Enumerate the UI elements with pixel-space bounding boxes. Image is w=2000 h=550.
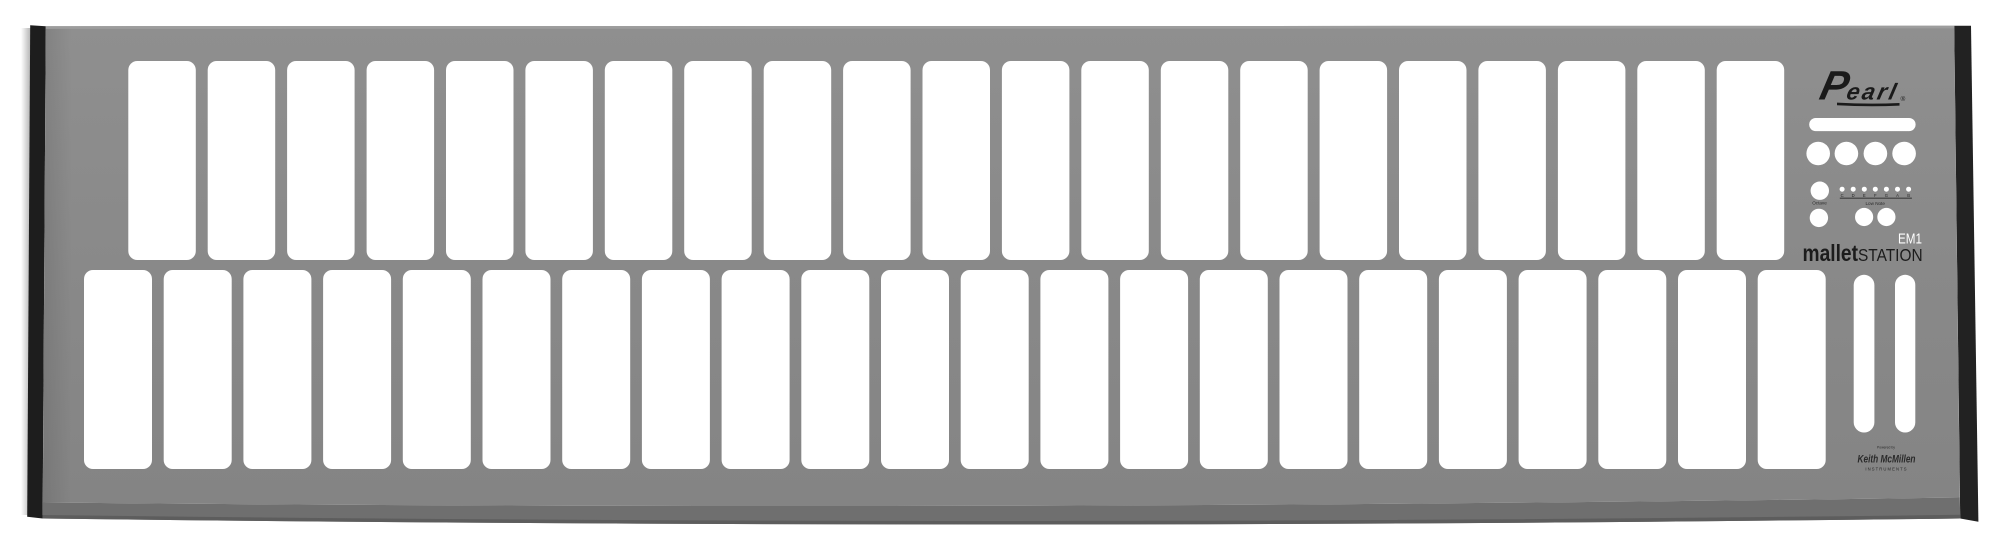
svg-text:Powered by: Powered by — [1877, 446, 1895, 450]
svg-text:A: A — [1896, 193, 1899, 198]
svg-text:mallet: mallet — [1803, 240, 1859, 266]
svg-text:Keith McMillen: Keith McMillen — [1858, 454, 1916, 466]
svg-text:B: B — [1907, 193, 1910, 198]
svg-text:Low Note: Low Note — [1865, 201, 1885, 206]
svg-text:Octave: Octave — [1812, 200, 1827, 205]
svg-text:E: E — [1863, 193, 1866, 198]
svg-text:D: D — [1852, 193, 1855, 198]
svg-text:®: ® — [1901, 95, 1906, 103]
svg-text:C: C — [1841, 193, 1844, 198]
svg-text:INSTRUMENTS: INSTRUMENTS — [1865, 467, 1907, 472]
svg-text:F: F — [1874, 193, 1877, 198]
svg-text:STATION: STATION — [1858, 245, 1923, 265]
svg-text:G: G — [1885, 193, 1888, 198]
